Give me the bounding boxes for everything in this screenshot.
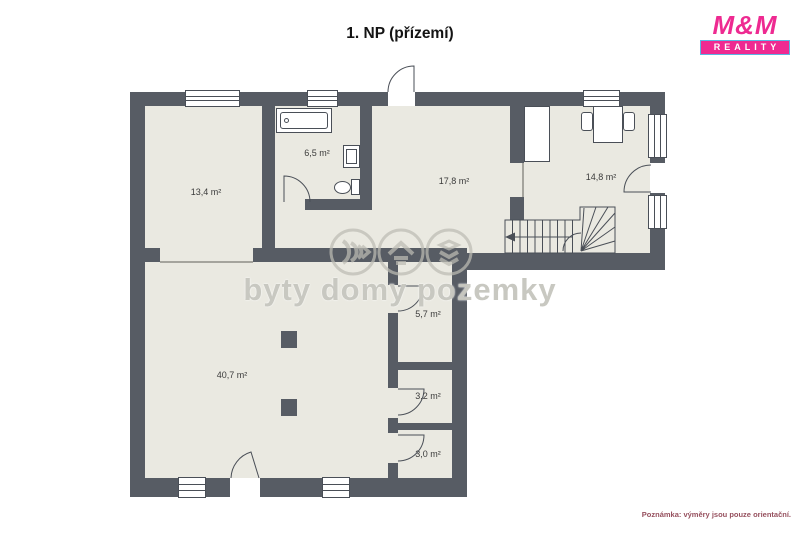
- sink-icon: [343, 145, 360, 168]
- toilet-tank: [351, 179, 360, 195]
- window-bottom-right: [322, 477, 350, 498]
- window-right-lower: [648, 195, 667, 229]
- room-label-5-7: 5,7 m²: [415, 309, 441, 319]
- watermark-text: byty domy pozemky: [243, 272, 556, 308]
- floor-upper-section: [145, 106, 650, 258]
- room-label-13-4: 13,4 m²: [191, 187, 222, 197]
- wall-32-30-divider: [388, 423, 462, 430]
- wall-mid-left-stub: [130, 248, 160, 262]
- wall-small-rooms-d: [388, 463, 398, 478]
- wall-57-32-divider: [388, 362, 462, 370]
- wall-178-148-upper: [510, 106, 524, 163]
- room-label-17-8: 17,8 m²: [439, 176, 470, 186]
- window-top-room148: [583, 90, 620, 107]
- chair-left-icon: [581, 112, 593, 131]
- column-lower: [281, 399, 297, 416]
- page-title: 1. NP (přízemí): [346, 25, 453, 43]
- door-gap-entrance: [230, 478, 260, 497]
- toilet-bowl: [334, 181, 351, 194]
- bathtub-drain: [284, 118, 289, 123]
- mm-reality-logo: M&M REALITY: [700, 12, 790, 55]
- disclaimer-note: Poznámka: výměry jsou pouze orientační.: [642, 510, 791, 519]
- wall-mid-band: [253, 248, 467, 262]
- room-label-6-5: 6,5 m²: [304, 148, 330, 158]
- door-gap-right-exterior: [650, 163, 665, 193]
- opening-line-178-148: [522, 163, 524, 197]
- window-top-room134: [185, 90, 240, 107]
- opening-line-134-407: [160, 261, 253, 263]
- logo-mm-text: M&M: [700, 12, 790, 39]
- table-icon: [593, 106, 623, 143]
- room-label-14-8: 14,8 m²: [586, 172, 617, 182]
- wall-small-rooms-b: [388, 313, 398, 388]
- chair-right-icon: [623, 112, 635, 131]
- wall-bath-right: [360, 106, 372, 210]
- floor-plan: byty domy pozemky 13,4 m² 6,5 m² 17,8 m²…: [0, 0, 800, 533]
- room-label-40-7: 40,7 m²: [217, 370, 248, 380]
- wall-bottom-upper-right: [467, 253, 665, 270]
- logo-reality-text: REALITY: [700, 40, 790, 55]
- window-bottom-left: [178, 477, 206, 498]
- room-label-3-2: 3,2 m²: [415, 391, 441, 401]
- wall-room-bath-divider: [262, 106, 275, 248]
- column-upper: [281, 331, 297, 348]
- room-label-3-0: 3,0 m²: [415, 449, 441, 459]
- window-right-upper: [648, 114, 667, 158]
- sink-basin: [346, 149, 357, 164]
- bathtub-icon: [276, 108, 332, 133]
- door-arc-top-exterior: [388, 66, 414, 92]
- window-top-bathroom: [307, 90, 338, 107]
- wall-178-148-lower: [510, 197, 524, 220]
- wall-left: [130, 92, 145, 497]
- closet-icon: [524, 106, 550, 162]
- door-gap-top-exterior: [388, 92, 415, 106]
